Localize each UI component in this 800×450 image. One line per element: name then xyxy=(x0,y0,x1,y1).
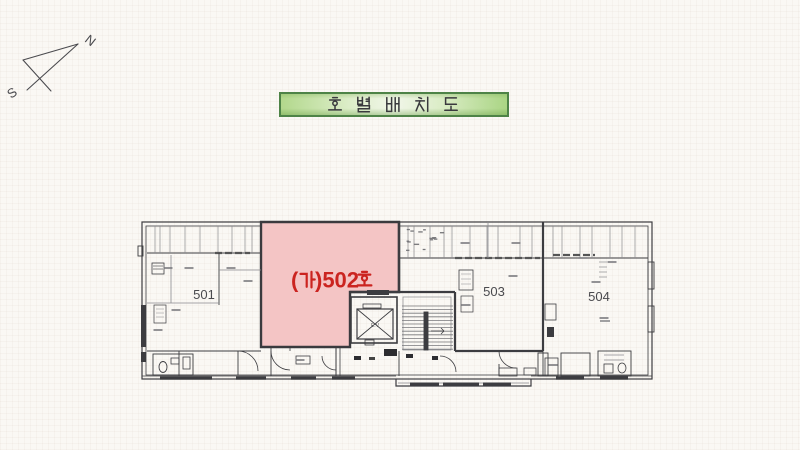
svg-text:E.V: E.V xyxy=(371,323,380,329)
svg-text:503: 503 xyxy=(483,284,505,299)
svg-text:N: N xyxy=(82,32,99,50)
svg-text:(: ( xyxy=(291,268,299,293)
svg-text:504: 504 xyxy=(588,289,610,304)
svg-text:S: S xyxy=(4,84,20,101)
svg-text:)502: )502 xyxy=(315,268,359,293)
svg-text:501: 501 xyxy=(193,287,215,302)
